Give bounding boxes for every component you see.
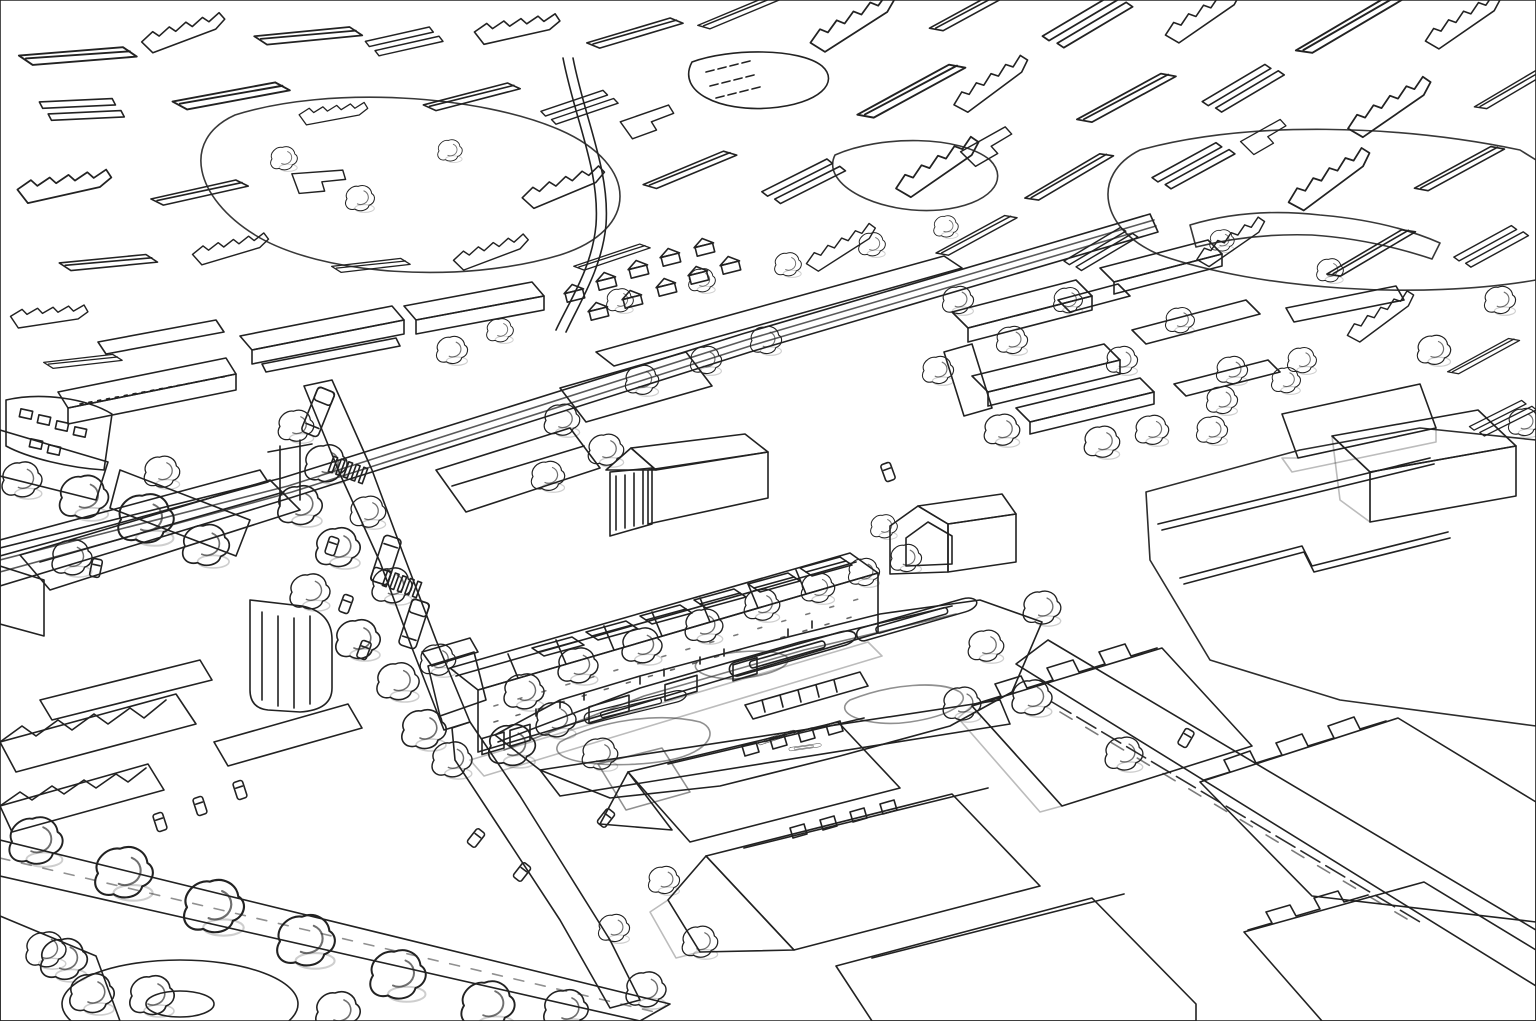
tree — [801, 573, 834, 604]
car — [324, 536, 339, 556]
car — [1177, 728, 1195, 749]
tree — [934, 216, 958, 239]
canal-basin — [495, 595, 1042, 798]
centre-blocks — [436, 352, 1016, 656]
avenue-road — [0, 840, 670, 1021]
tree — [1484, 286, 1515, 315]
tree — [1023, 591, 1061, 626]
hedge-row — [1052, 702, 1420, 922]
car-park-sketch — [689, 52, 829, 109]
existing-town-line-sketch — [9, 0, 1536, 439]
tree — [487, 319, 514, 344]
vehicles-layer — [89, 386, 1195, 882]
tree — [531, 461, 564, 492]
tree — [1166, 308, 1195, 335]
tree — [1417, 335, 1450, 366]
car — [152, 812, 167, 832]
tree — [871, 515, 898, 540]
tree — [558, 648, 598, 685]
tree — [436, 336, 467, 365]
tree — [859, 233, 886, 258]
tree — [744, 589, 780, 622]
tree — [1084, 426, 1120, 459]
tree — [984, 414, 1020, 447]
railway-line — [0, 214, 1158, 586]
tree — [277, 915, 335, 969]
tree — [316, 992, 360, 1021]
masterplan-illustration: Aerial sketch masterplan of a town centr… — [0, 0, 1536, 1021]
tree — [1012, 680, 1052, 717]
car — [232, 780, 247, 800]
gabled-hall — [890, 494, 1016, 574]
railway-verge — [596, 256, 962, 366]
tree — [1135, 415, 1168, 446]
tree — [626, 972, 666, 1009]
station-platform — [0, 470, 268, 556]
tree — [278, 410, 314, 443]
tree — [685, 609, 723, 644]
tree — [271, 147, 298, 172]
tree — [1288, 348, 1317, 375]
tree — [70, 974, 114, 1015]
industrial-sheds — [958, 644, 1536, 1021]
masterplan-canvas: Aerial sketch masterplan of a town centr… — [0, 0, 1536, 1021]
tree — [438, 140, 462, 163]
railway-station — [0, 396, 332, 712]
wharf-facade — [478, 573, 878, 752]
narrowboat — [789, 743, 822, 751]
car — [467, 828, 486, 848]
tree — [2, 462, 42, 499]
tree — [588, 434, 624, 467]
tree — [372, 568, 412, 605]
tree — [183, 525, 230, 568]
classical-maltings-building — [606, 434, 768, 536]
tree — [346, 186, 375, 213]
white-gabled-pair — [906, 522, 952, 566]
tree — [607, 289, 634, 314]
tree — [504, 674, 544, 711]
car — [880, 462, 896, 482]
southwest-terraces — [0, 660, 362, 832]
tree — [377, 663, 419, 702]
new-housing-north — [58, 236, 742, 424]
tree — [60, 476, 109, 521]
tree — [544, 990, 588, 1021]
playing-field — [1146, 410, 1536, 726]
car — [338, 594, 354, 614]
tree — [370, 950, 426, 1002]
large-pink-block — [436, 428, 600, 512]
tree — [1206, 386, 1237, 415]
paper-background — [0, 0, 1536, 1021]
tree — [26, 932, 66, 969]
tree — [95, 847, 153, 901]
tree — [432, 742, 472, 779]
car — [513, 862, 532, 882]
tree — [144, 456, 180, 489]
tree — [1196, 416, 1227, 445]
car — [192, 796, 207, 816]
new-housing-courts — [944, 240, 1436, 472]
tree — [775, 253, 802, 278]
wharf-road — [1016, 640, 1536, 986]
tree — [1105, 737, 1143, 772]
tree — [968, 630, 1004, 663]
tree — [922, 356, 953, 385]
tree — [316, 528, 360, 569]
tree — [336, 620, 380, 661]
tree — [350, 496, 386, 529]
